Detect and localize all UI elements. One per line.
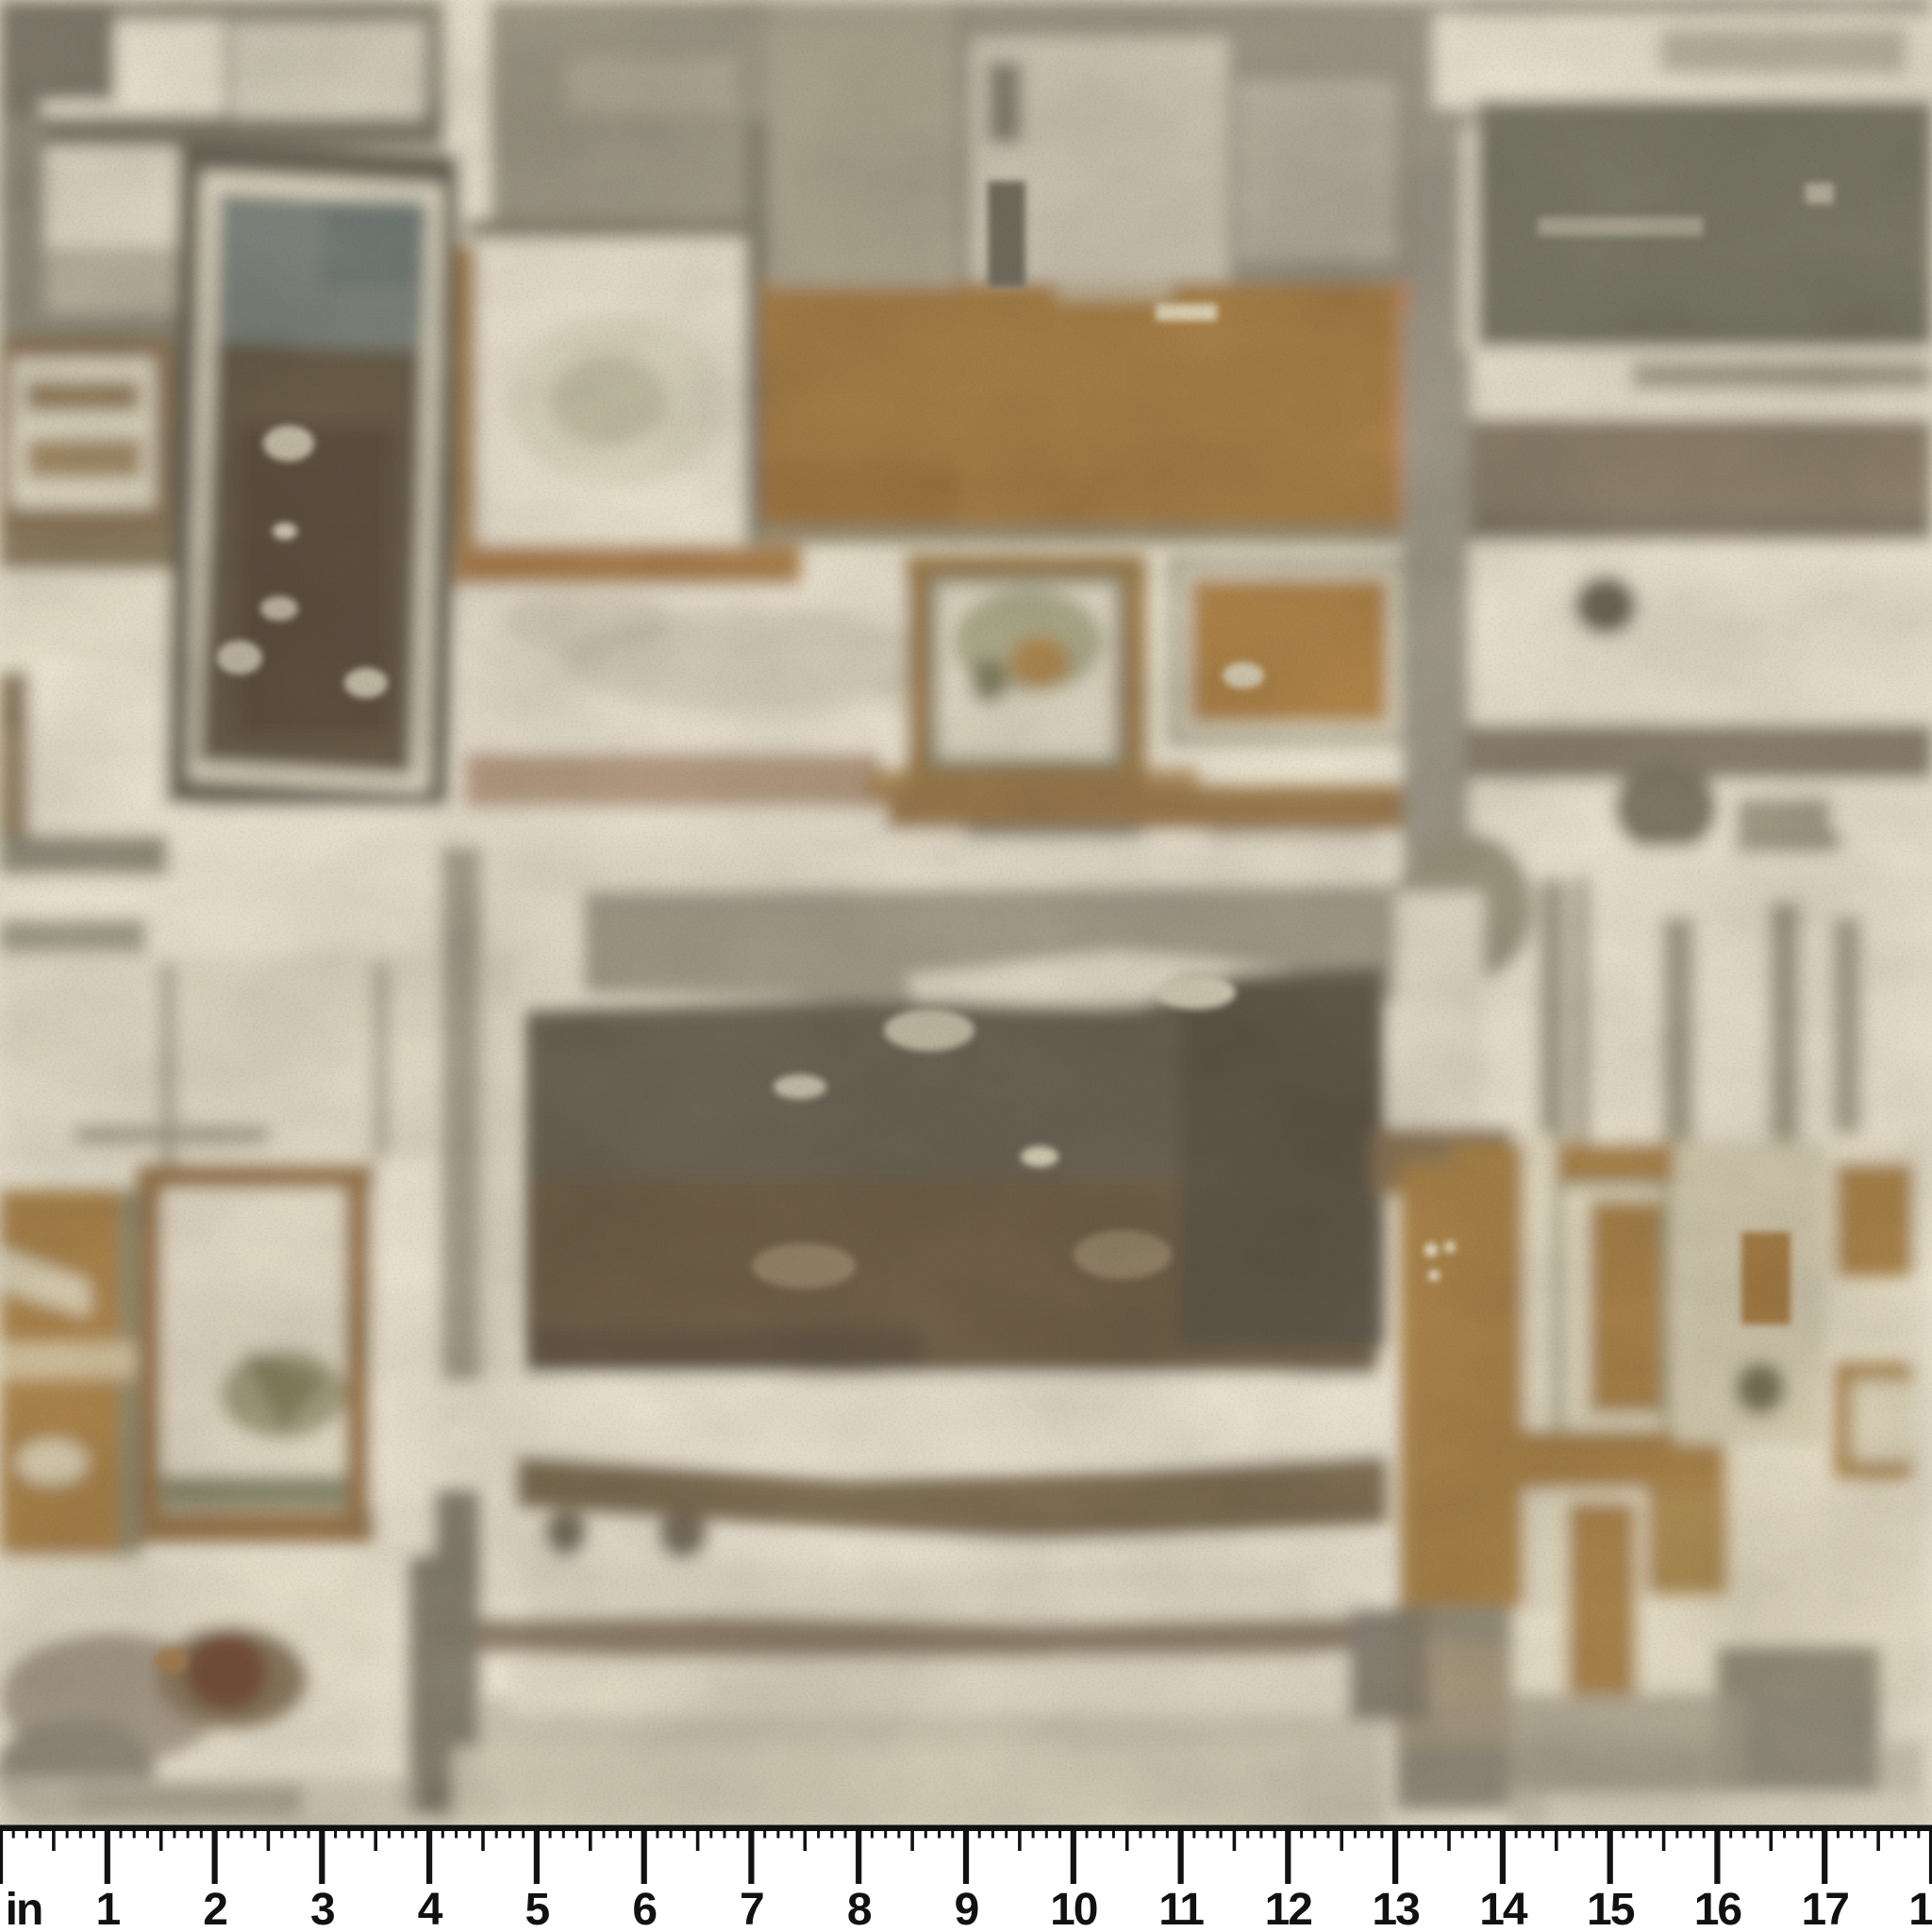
svg-text:18: 18 — [1908, 1885, 1932, 1932]
svg-text:16: 16 — [1694, 1885, 1741, 1932]
svg-text:10: 10 — [1050, 1885, 1097, 1932]
svg-text:12: 12 — [1265, 1885, 1312, 1932]
svg-text:14: 14 — [1479, 1885, 1528, 1932]
svg-text:13: 13 — [1372, 1885, 1419, 1932]
svg-text:7: 7 — [740, 1885, 763, 1932]
svg-text:3: 3 — [310, 1885, 334, 1932]
svg-text:5: 5 — [525, 1885, 550, 1932]
svg-text:4: 4 — [418, 1885, 443, 1932]
svg-text:17: 17 — [1802, 1885, 1849, 1932]
svg-text:2: 2 — [203, 1885, 226, 1932]
svg-text:15: 15 — [1587, 1885, 1635, 1932]
svg-text:1: 1 — [95, 1885, 120, 1932]
svg-text:8: 8 — [847, 1885, 872, 1932]
svg-text:11: 11 — [1158, 1885, 1204, 1932]
svg-text:9: 9 — [955, 1885, 978, 1932]
svg-text:in: in — [6, 1885, 42, 1932]
svg-text:6: 6 — [632, 1885, 656, 1932]
